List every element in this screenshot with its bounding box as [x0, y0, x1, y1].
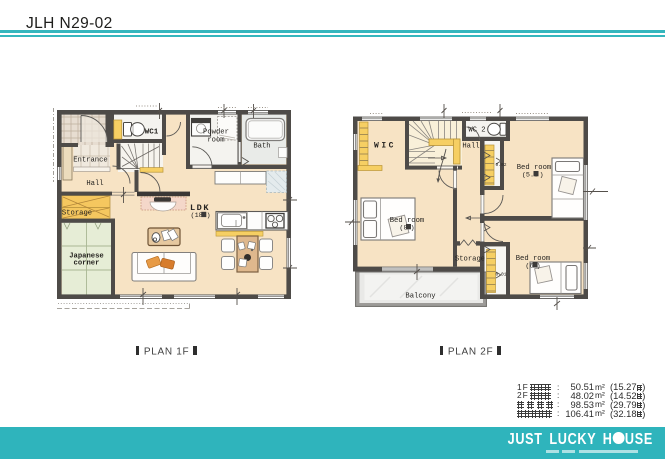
svg-text:0.01: 0.01: [495, 272, 506, 278]
svg-text:WIC: WIC: [374, 142, 396, 151]
svg-text:WC 2: WC 2: [468, 127, 485, 135]
svg-text:corner: corner: [74, 260, 100, 268]
svg-text:Bath: Bath: [253, 143, 270, 151]
svg-text:Hall: Hall: [462, 143, 479, 151]
svg-text:Balcony: Balcony: [405, 293, 436, 301]
svg-text:Entrance: Entrance: [73, 157, 108, 165]
svg-text:): ): [539, 172, 543, 180]
svg-text:): ): [410, 225, 414, 233]
svg-text:Storage: Storage: [62, 210, 92, 218]
svg-text:Powder: Powder: [203, 129, 229, 137]
svg-text:room: room: [207, 137, 224, 145]
svg-text:0.02: 0.02: [495, 162, 506, 168]
svg-text:WC1: WC1: [145, 129, 159, 137]
svg-text:): ): [207, 212, 211, 220]
svg-text:Storage: Storage: [455, 256, 485, 264]
svg-text:Hall: Hall: [86, 180, 103, 188]
svg-text:(18: (18: [191, 212, 203, 220]
svg-text:(6: (6: [525, 263, 533, 271]
